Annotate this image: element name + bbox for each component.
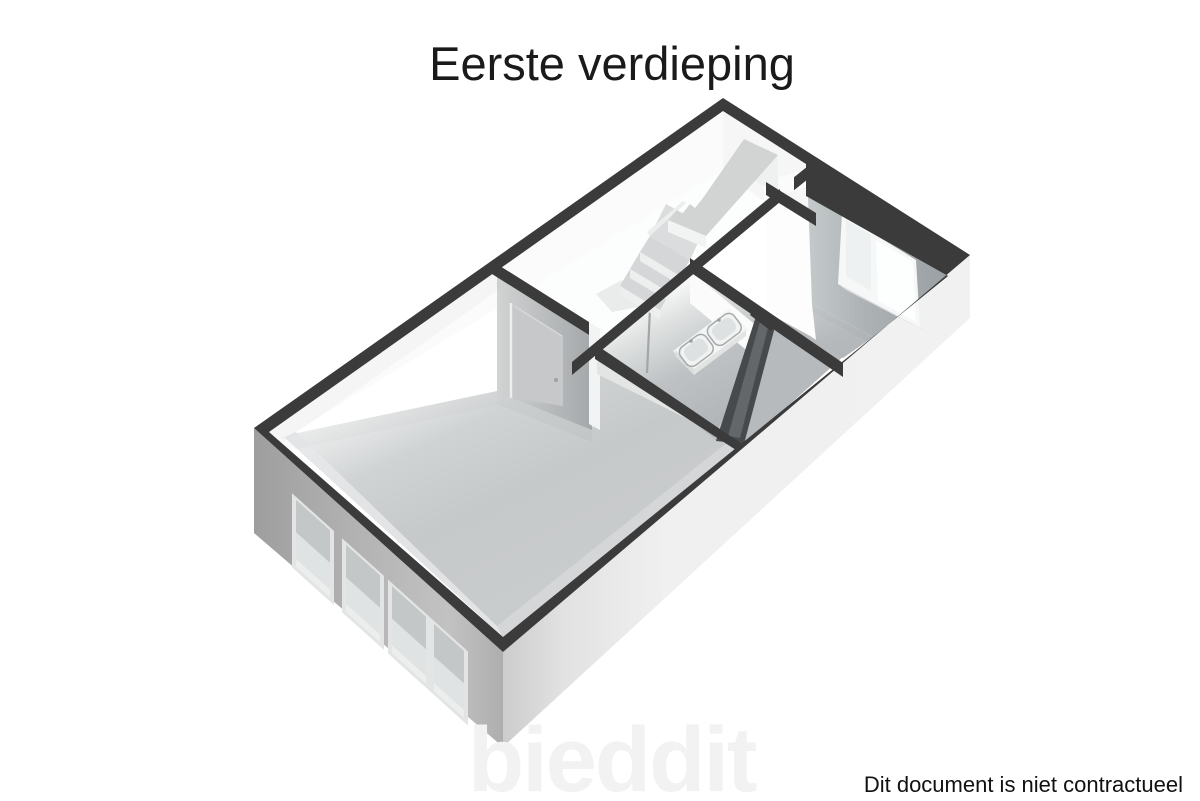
svg-text:bieddit: bieddit bbox=[468, 709, 757, 801]
svg-text:Eerste verdieping: Eerste verdieping bbox=[429, 37, 795, 90]
svg-text:Dit document is niet contractu: Dit document is niet contractueel bbox=[864, 772, 1183, 797]
